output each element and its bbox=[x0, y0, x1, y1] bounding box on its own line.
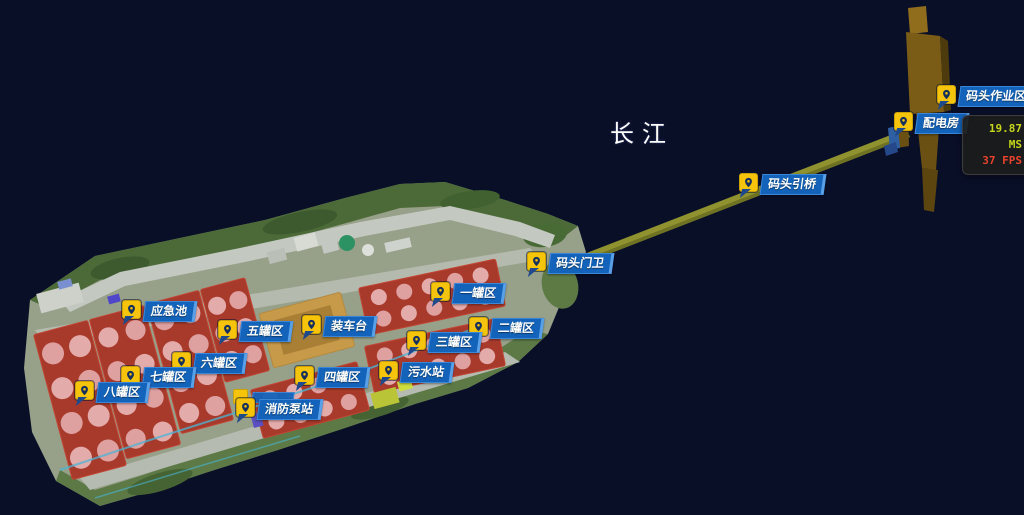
map-marker-tank-area-1[interactable]: 一罐区 bbox=[431, 282, 505, 304]
map-marker-dock-gate[interactable]: 码头门卫 bbox=[527, 252, 613, 274]
location-pin-icon bbox=[527, 252, 546, 271]
marker-label: 一罐区 bbox=[452, 283, 507, 304]
location-pin-icon bbox=[407, 331, 426, 350]
location-pin-icon bbox=[302, 315, 321, 334]
marker-label: 消防泵站 bbox=[257, 399, 324, 420]
map-marker-tank-area-3[interactable]: 三罐区 bbox=[407, 331, 481, 353]
marker-label: 二罐区 bbox=[490, 318, 545, 339]
map-marker-fire-pump-station[interactable]: 消防泵站 bbox=[236, 398, 322, 420]
map-marker-dock-operation-area[interactable]: 码头作业区 bbox=[937, 85, 1024, 107]
marker-label: 八罐区 bbox=[96, 382, 151, 403]
map-marker-loading-platform[interactable]: 装车台 bbox=[302, 315, 376, 337]
location-pin-icon bbox=[431, 282, 450, 301]
digital-twin-map-viewport[interactable]: 长江 19.87 MS 37 FPS 应急池 五罐区 bbox=[0, 0, 1024, 515]
performance-hud: 19.87 MS 37 FPS bbox=[962, 115, 1024, 175]
location-pin-icon bbox=[937, 85, 956, 104]
location-pin-icon bbox=[295, 366, 314, 385]
location-pin-icon bbox=[218, 320, 237, 339]
map-marker-dock-bridge[interactable]: 码头引桥 bbox=[739, 173, 825, 195]
fps-readout: 37 FPS bbox=[970, 153, 1022, 169]
marker-label: 三罐区 bbox=[428, 332, 483, 353]
map-marker-tank-area-8[interactable]: 八罐区 bbox=[75, 381, 149, 403]
map-marker-tank-area-4[interactable]: 四罐区 bbox=[295, 366, 369, 388]
latency-readout: 19.87 MS bbox=[970, 121, 1022, 153]
marker-label: 应急池 bbox=[143, 301, 198, 322]
location-pin-icon bbox=[894, 112, 913, 131]
location-pin-icon bbox=[739, 173, 758, 192]
marker-label: 码头引桥 bbox=[760, 174, 827, 195]
map-marker-sewage-station[interactable]: 污水站 bbox=[379, 361, 453, 383]
map-marker-emergency-pool[interactable]: 应急池 bbox=[122, 300, 196, 322]
map-marker-power-distribution-room[interactable]: 配电房 bbox=[894, 112, 968, 134]
location-pin-icon bbox=[122, 300, 141, 319]
location-pin-icon bbox=[75, 381, 94, 400]
scene-canvas[interactable] bbox=[0, 0, 1024, 515]
location-pin-icon bbox=[236, 398, 255, 417]
marker-label: 污水站 bbox=[400, 362, 455, 383]
river-name-label: 长江 bbox=[610, 114, 674, 149]
marker-label: 五罐区 bbox=[239, 321, 294, 342]
marker-label: 四罐区 bbox=[316, 367, 371, 388]
map-marker-tank-area-5[interactable]: 五罐区 bbox=[218, 320, 292, 342]
marker-label: 码头门卫 bbox=[548, 253, 615, 274]
location-pin-icon bbox=[379, 361, 398, 380]
marker-label: 码头作业区 bbox=[958, 86, 1024, 107]
marker-label: 六罐区 bbox=[193, 353, 248, 374]
marker-label: 装车台 bbox=[323, 316, 378, 337]
